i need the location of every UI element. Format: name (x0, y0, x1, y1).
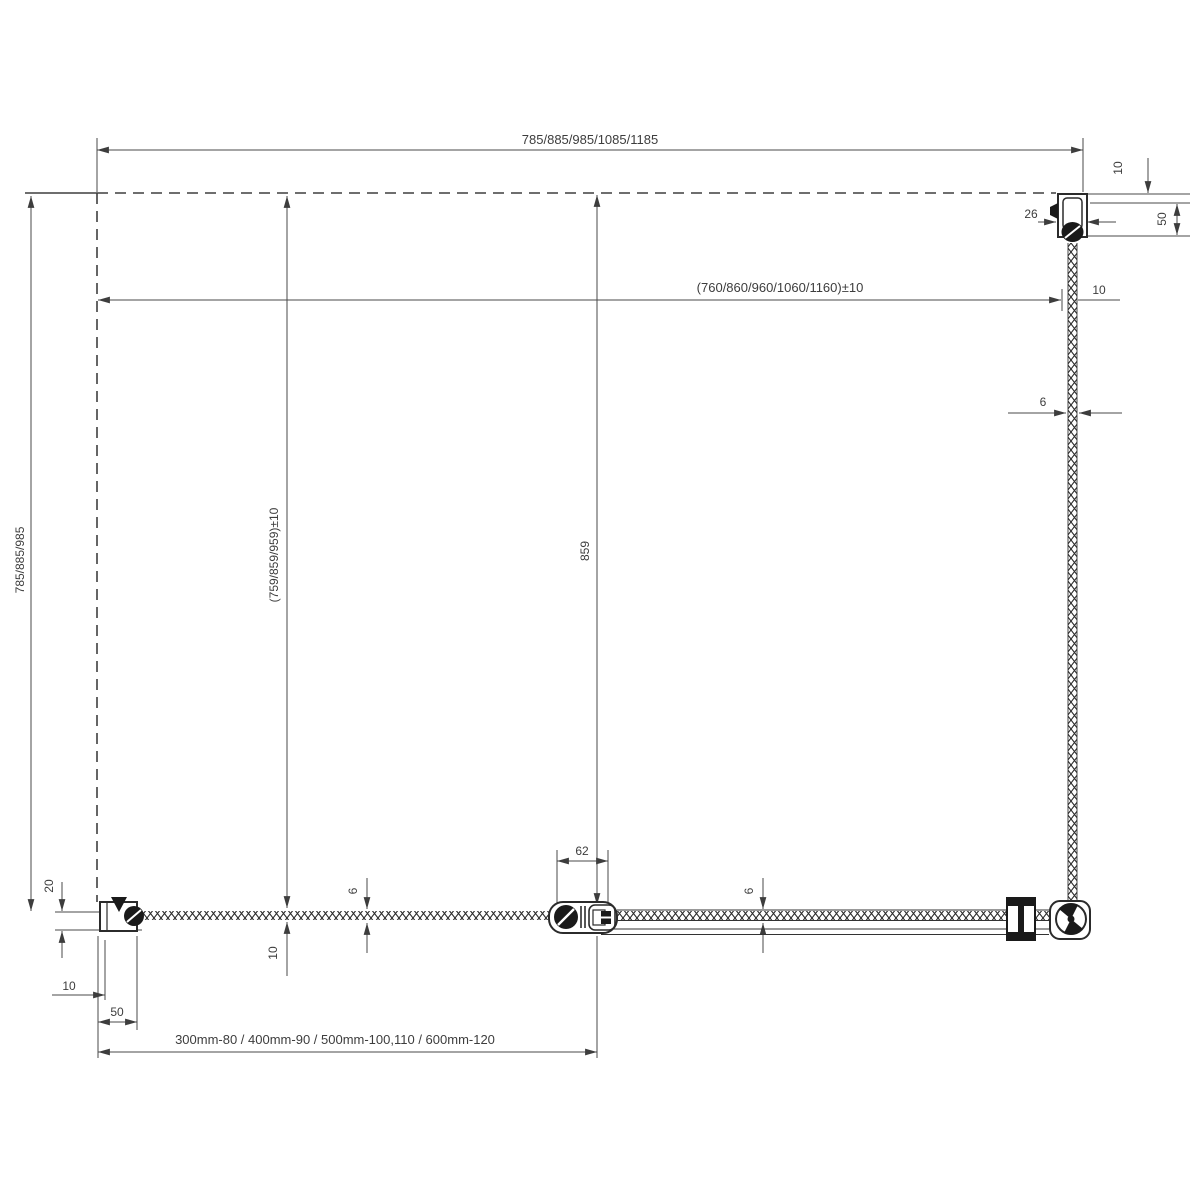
shower-enclosure-plan-drawing: 785/885/985/1085/1185 (760/860/960/1060/… (0, 0, 1200, 1200)
center-connector-profile (549, 902, 617, 933)
label-door-glass-thickness: 6 (346, 887, 360, 894)
hinge-wall-profile (100, 897, 144, 931)
label-inner-width: (760/860/960/1060/1160)±10 (697, 280, 864, 295)
clamp-top-plate (1007, 898, 1035, 906)
clamp-web (1018, 906, 1024, 932)
label-hinge-width: 50 (110, 1005, 124, 1019)
label-top-width: 785/885/985/1085/1185 (522, 132, 658, 147)
label-hinge-offset: 20 (42, 879, 56, 893)
glass-panels (141, 243, 1077, 935)
label-profile-width: 26 (1024, 207, 1038, 221)
pivot-pin (1068, 916, 1075, 923)
technical-drawing-canvas: 785/885/985/1085/1185 (760/860/960/1060/… (0, 0, 1200, 1200)
glass-door-panel (141, 911, 549, 920)
label-left-height: 785/885/985 (13, 526, 27, 593)
label-fixed-glass-thickness: 6 (742, 887, 756, 894)
label-fixed-length: 859 (578, 541, 592, 561)
glass-side-panel (1068, 243, 1077, 905)
label-side-glass-thickness: 6 (1040, 395, 1047, 409)
panel-clamp-bracket (1007, 898, 1035, 940)
label-top-gap: 10 (1111, 161, 1125, 175)
label-connector-width: 62 (575, 844, 589, 858)
corner-pivot (1050, 901, 1090, 939)
clamp-bottom-plate (1007, 932, 1035, 940)
label-inner-height: (759/859/959)±10 (267, 507, 281, 602)
tr-profile-clip (1050, 203, 1058, 219)
label-side-gap: 10 (1092, 283, 1106, 297)
label-door-bottom-gap: 10 (266, 946, 280, 960)
wall-profile-top-right (1050, 194, 1087, 242)
wall-reference-lines (25, 193, 1056, 902)
glass-fixed-panel (617, 911, 1052, 920)
label-profile-depth: 50 (1155, 212, 1169, 226)
label-tray-sizes: 300mm-80 / 400mm-90 / 500mm-100,110 / 60… (175, 1032, 495, 1047)
label-hinge-gap: 10 (62, 979, 76, 993)
